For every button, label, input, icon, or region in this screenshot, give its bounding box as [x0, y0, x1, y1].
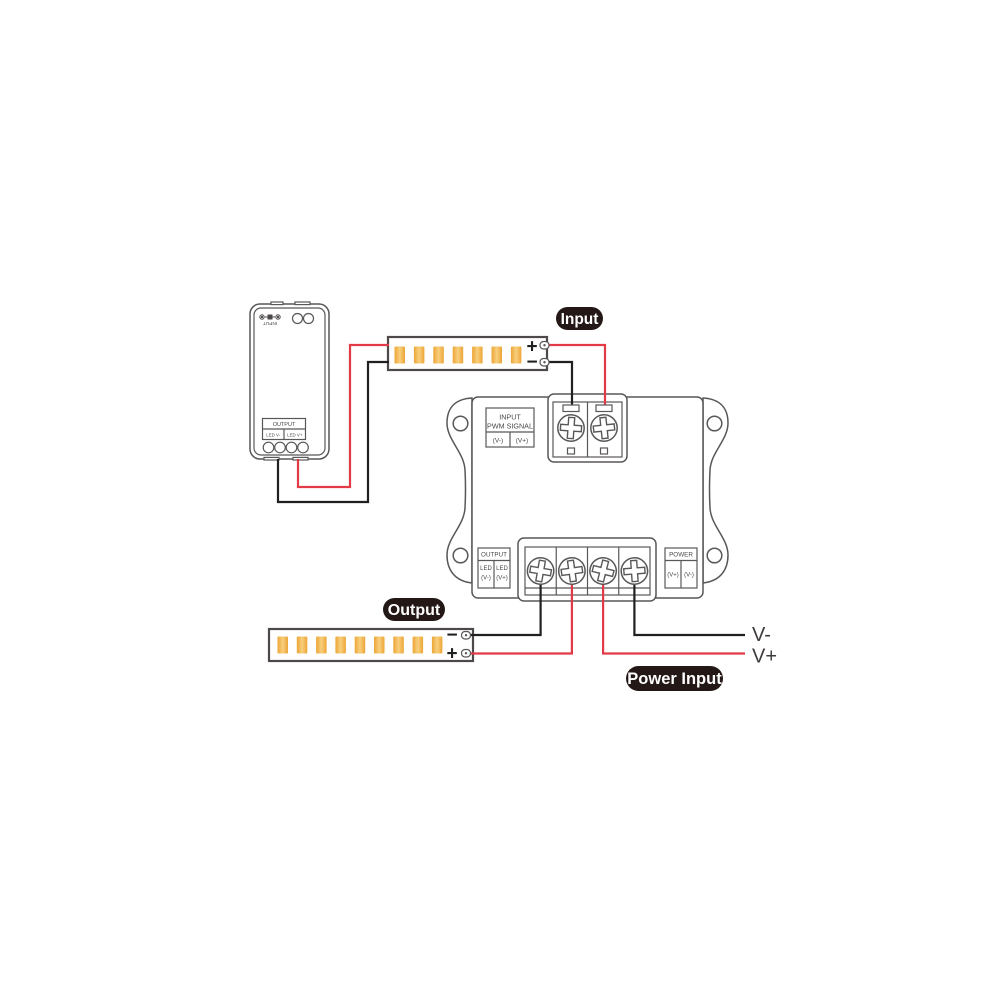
led-chip	[492, 347, 503, 364]
v-minus-label: V-	[752, 624, 771, 646]
amplifier-unit: INPUT PWM SIGNAL (V-) (V+) OUTPUT LED (V…	[447, 394, 728, 601]
controller-terminal	[263, 442, 274, 453]
led-chip	[395, 347, 406, 364]
mounting-hole	[707, 548, 722, 563]
led-chip	[472, 347, 483, 364]
led-chip	[278, 637, 289, 654]
mounting-hole	[707, 416, 722, 431]
input-block-title-line2: PWM SIGNAL	[487, 422, 533, 431]
output-block-header: OUTPUT	[481, 552, 507, 559]
solder-pad-dot	[543, 361, 545, 363]
controller-ledneg-cell: LED V-	[266, 432, 280, 437]
v-plus-label: V+	[752, 646, 777, 668]
diagram-root: INPUT PWM SIGNAL (V-) (V+) OUTPUT LED (V…	[0, 0, 1000, 1000]
power-input-badge-label: Power Input	[627, 670, 722, 688]
controller-output-header: OUTPUT	[273, 422, 296, 428]
output-cell2-line2: (V+)	[496, 576, 508, 582]
output-badge: Output	[383, 598, 445, 621]
power-vplus-cell: (V+)	[667, 573, 679, 579]
controller-terminal	[286, 442, 297, 453]
controller-terminal	[275, 442, 286, 453]
controller-button	[304, 314, 314, 324]
mounting-hole	[453, 548, 468, 563]
led-chip	[393, 637, 404, 654]
led-chip	[374, 637, 385, 654]
terminal-slot	[601, 448, 608, 454]
led-chip	[297, 637, 308, 654]
power-vminus-cell: (V-)	[684, 573, 694, 579]
led-chip	[453, 347, 464, 364]
controller-input-port-icon	[260, 315, 280, 319]
output-led-strip: − +	[269, 625, 473, 665]
wire-clamp	[596, 405, 612, 412]
terminal-slot	[568, 448, 575, 454]
led-chip	[355, 637, 366, 654]
solder-pad-dot	[543, 344, 545, 346]
input-vminus-cell: (V-)	[493, 437, 503, 444]
input-vplus-cell: (V+)	[516, 437, 528, 444]
led-chip	[335, 637, 346, 654]
input-block-title-line1: INPUT	[499, 413, 521, 422]
output-strip-leds	[278, 637, 443, 654]
input-badge: Input	[556, 307, 603, 330]
screw-terminal	[557, 414, 585, 442]
output-cell1-line1: LED	[480, 566, 492, 572]
led-chip	[433, 347, 444, 364]
controller-ledpos-cell: LED V+	[287, 432, 303, 437]
controller-button	[293, 314, 303, 324]
power-block-header: POWER	[669, 552, 693, 559]
led-controller: INPUT OUTPUT LED V- LED V+	[250, 302, 329, 460]
led-chip	[511, 347, 522, 364]
mounting-hole	[453, 416, 468, 431]
output-cell1-line2: (V-)	[481, 576, 491, 582]
controller-port-label: INPUT	[263, 320, 277, 326]
led-chip	[414, 347, 425, 364]
output-badge-label: Output	[388, 602, 441, 619]
input-led-strip: + −	[388, 337, 547, 374]
solder-pad-dot	[465, 652, 467, 654]
led-chip	[413, 637, 424, 654]
output-cell2-line1: LED	[496, 566, 508, 572]
wiring-diagram-canvas: INPUT PWM SIGNAL (V-) (V+) OUTPUT LED (V…	[0, 0, 1000, 1000]
input-badge-label: Input	[561, 311, 599, 328]
controller-terminal	[298, 442, 309, 453]
led-chip	[316, 637, 327, 654]
screw-terminal	[620, 557, 648, 585]
solder-pad-dot	[465, 634, 467, 636]
polarity-minus-label: −	[526, 352, 537, 373]
polarity-plus-label: +	[446, 644, 457, 665]
led-chip	[432, 637, 443, 654]
power-input-badge: Power Input	[626, 666, 723, 691]
wire-clamp	[563, 405, 579, 412]
